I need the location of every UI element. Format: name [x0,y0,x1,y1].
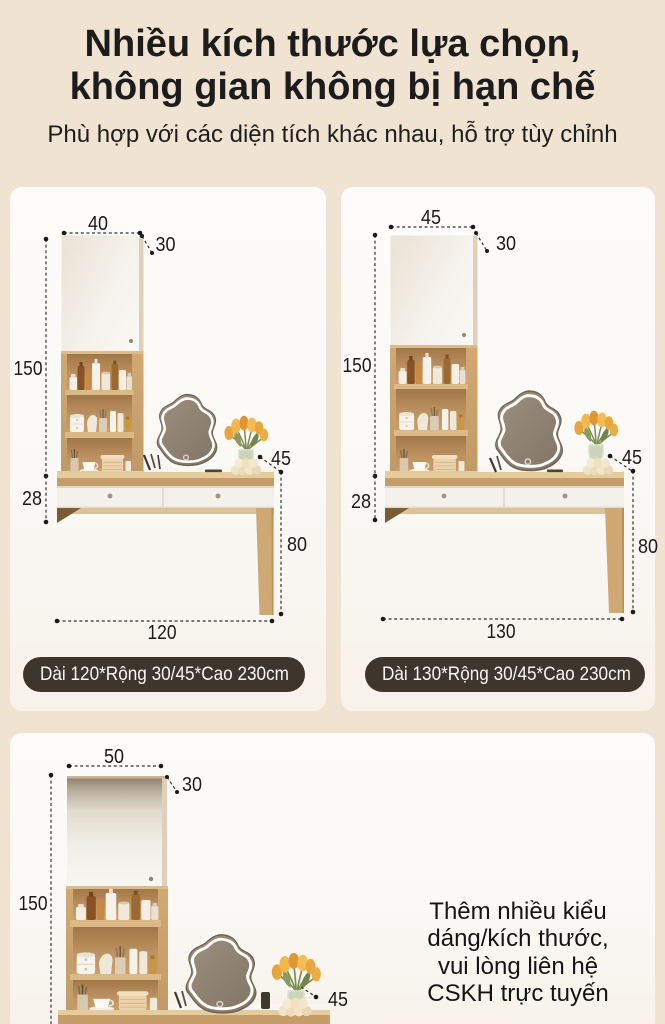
svg-text:80: 80 [287,534,307,556]
svg-text:45: 45 [271,448,291,470]
svg-text:45: 45 [421,207,441,229]
svg-text:40: 40 [88,213,108,235]
svg-text:130: 130 [487,621,516,643]
svg-text:dáng/kích thước,: dáng/kích thước, [427,925,608,952]
svg-text:30: 30 [182,774,202,796]
svg-text:80: 80 [638,536,658,558]
svg-text:120: 120 [148,622,177,644]
svg-text:Thêm nhiều kiểu: Thêm nhiều kiểu [429,898,606,925]
svg-text:150: 150 [19,893,48,915]
svg-text:CSKH trực tuyến: CSKH trực tuyến [427,980,608,1007]
svg-text:45: 45 [622,447,642,469]
svg-text:150: 150 [343,355,372,377]
svg-text:28: 28 [22,488,42,510]
svg-text:150: 150 [14,358,43,380]
svg-text:30: 30 [156,234,176,256]
svg-text:50: 50 [104,746,124,768]
svg-text:45: 45 [328,989,348,1011]
svg-text:30: 30 [496,233,516,255]
svg-text:28: 28 [351,491,371,513]
svg-text:vui lòng liên hệ: vui lòng liên hệ [438,953,598,980]
